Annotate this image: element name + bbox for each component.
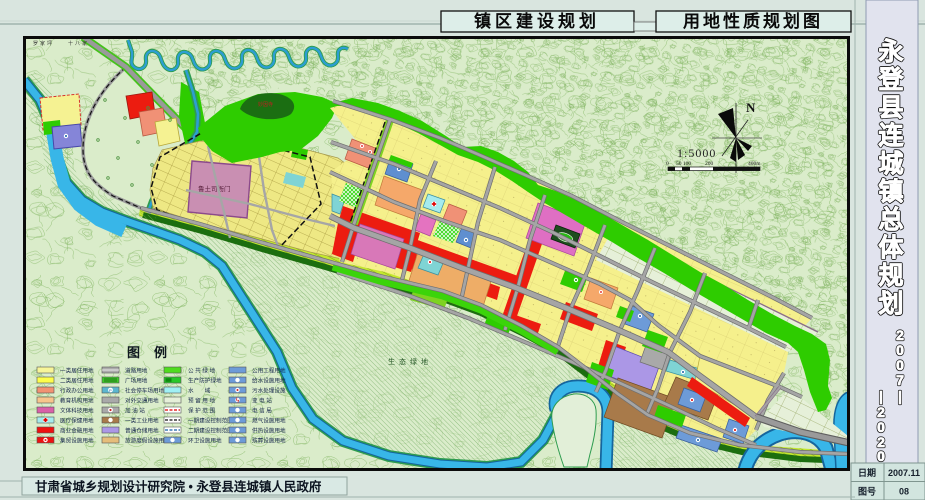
svg-text:镇区建设规划: 镇区建设规划 (474, 11, 600, 31)
svg-text:|: | (898, 388, 902, 404)
svg-text:50 100: 50 100 (676, 161, 691, 167)
svg-text:城: 城 (878, 150, 903, 178)
svg-text:N: N (746, 100, 756, 115)
svg-text:医疗保健用地: 医疗保健用地 (60, 417, 94, 425)
svg-text:7: 7 (896, 372, 904, 388)
svg-text:文体科技用地: 文体科技用地 (60, 407, 94, 415)
svg-text:体: 体 (878, 234, 904, 262)
svg-text:变 电 站: 变 电 站 (252, 397, 272, 405)
svg-text:水 域: 水 域 (188, 387, 211, 395)
svg-text:预 留 用 地: 预 留 用 地 (188, 397, 215, 405)
svg-text:妙因寺: 妙因寺 (258, 101, 273, 108)
svg-text:2: 2 (896, 327, 904, 343)
svg-text:罗家坪 十八家: 罗家坪 十八家 (33, 40, 89, 47)
svg-text:400m: 400m (748, 161, 761, 167)
svg-text:污水处理设施: 污水处理设施 (252, 387, 286, 395)
svg-text:镇: 镇 (878, 178, 903, 206)
svg-text:环卫设施用地: 环卫设施用地 (188, 437, 222, 445)
svg-text:一期建设控制范围: 一期建设控制范围 (188, 417, 233, 425)
svg-text:普通仓储用地: 普通仓储用地 (125, 427, 159, 435)
svg-text:电 信 局: 电 信 局 (252, 407, 272, 415)
svg-text:旅游度假设施用地: 旅游度假设施用地 (125, 437, 170, 445)
svg-text:社会停车场用地: 社会停车场用地 (125, 387, 165, 395)
svg-text:图例: 图例 (127, 345, 181, 360)
svg-text:登: 登 (877, 65, 904, 94)
svg-text:生产防护绿地: 生产防护绿地 (188, 377, 222, 385)
svg-text:一类居住用地: 一类居住用地 (60, 367, 94, 375)
svg-text:道路用地: 道路用地 (125, 367, 148, 375)
svg-text:保 护 范 围: 保 护 范 围 (188, 407, 215, 415)
svg-text:公用工程用地: 公用工程用地 (252, 367, 286, 375)
svg-text:2: 2 (877, 404, 885, 420)
svg-text:08: 08 (899, 487, 909, 497)
svg-text:给水设施用地: 给水设施用地 (252, 377, 286, 385)
svg-text:对外交通用地: 对外交通用地 (125, 397, 159, 405)
svg-text:供热设施用地: 供热设施用地 (252, 427, 286, 435)
svg-text:集贸设施用地: 集贸设施用地 (60, 437, 94, 445)
svg-text:甘肃省城乡规划设计研究院 • 永登县连城镇人民政府: 甘肃省城乡规划设计研究院 • 永登县连城镇人民政府 (35, 479, 322, 494)
svg-text:0: 0 (877, 419, 885, 435)
svg-text:划: 划 (878, 290, 903, 318)
svg-text:0: 0 (877, 448, 885, 464)
svg-text:二期建设控制范围: 二期建设控制范围 (188, 427, 233, 435)
svg-text:P: P (109, 388, 112, 393)
svg-text:二类居住用地: 二类居住用地 (60, 377, 94, 385)
svg-text:商业金融用地: 商业金融用地 (60, 427, 94, 435)
svg-text:广场用地: 广场用地 (125, 377, 148, 385)
svg-text:县: 县 (878, 94, 903, 122)
svg-text:0: 0 (896, 357, 904, 373)
svg-text:0: 0 (666, 161, 669, 167)
svg-text:用地性质规划图: 用地性质规划图 (683, 11, 823, 31)
svg-text:规: 规 (878, 262, 903, 290)
svg-text:0: 0 (896, 342, 904, 358)
svg-text:鲁土司衙门: 鲁土司衙门 (198, 184, 231, 193)
svg-text:图号: 图号 (858, 487, 876, 497)
svg-text:连: 连 (878, 122, 904, 150)
svg-text:2007.11: 2007.11 (888, 468, 920, 478)
svg-text:殡葬设施用地: 殡葬设施用地 (252, 437, 286, 445)
svg-text:总: 总 (878, 206, 903, 234)
svg-text:燃气设施用地: 燃气设施用地 (252, 417, 286, 425)
svg-text:教育机构用地: 教育机构用地 (60, 397, 94, 405)
svg-text:一类工业用地: 一类工业用地 (125, 417, 159, 425)
svg-text:200: 200 (705, 161, 714, 167)
svg-text:日期: 日期 (858, 467, 876, 478)
svg-text:公 共 绿 地: 公 共 绿 地 (188, 367, 215, 375)
svg-text:|: | (879, 388, 883, 404)
svg-text:生态绿地: 生态绿地 (388, 357, 432, 366)
svg-text:行政办公用地: 行政办公用地 (60, 387, 94, 395)
svg-text:1:5000: 1:5000 (677, 146, 716, 160)
svg-text:永: 永 (878, 38, 903, 66)
svg-text:加 油 站: 加 油 站 (125, 407, 145, 415)
